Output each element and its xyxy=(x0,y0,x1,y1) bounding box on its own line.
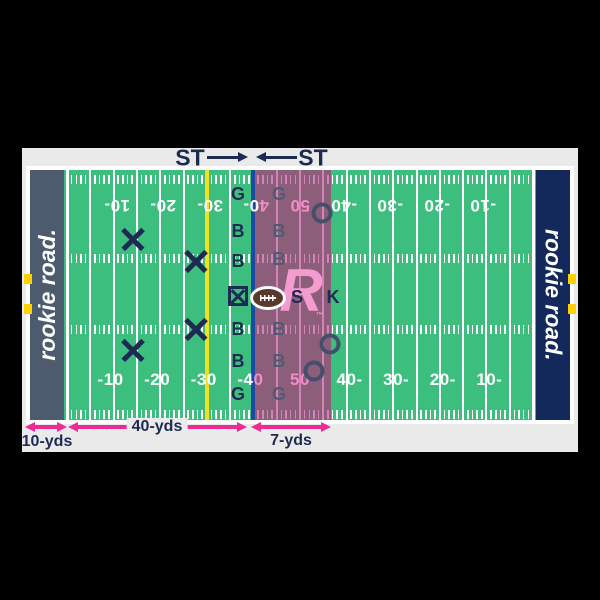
goal-line xyxy=(532,170,535,420)
hash-mark xyxy=(145,325,147,334)
sideline-marker-icon xyxy=(24,274,32,284)
hash-mark xyxy=(332,175,334,184)
hash-mark xyxy=(248,254,250,263)
hash-mark xyxy=(71,325,73,334)
hash-mark xyxy=(374,175,376,184)
hash-mark xyxy=(528,254,530,263)
hash-mark xyxy=(476,325,478,334)
hash-mark xyxy=(448,325,450,334)
hash-mark xyxy=(197,175,199,184)
hash-mark xyxy=(332,325,334,334)
hash-mark xyxy=(350,325,352,334)
hash-mark xyxy=(336,254,338,263)
player-o-mark xyxy=(312,203,333,224)
hash-mark xyxy=(448,410,450,419)
player-o-mark xyxy=(320,334,341,355)
hash-mark xyxy=(117,325,119,334)
hash-mark xyxy=(85,325,87,334)
yard-number: -20 xyxy=(424,195,450,215)
yard-number: 40- xyxy=(243,195,269,215)
hash-mark xyxy=(85,175,87,184)
yard-number-part: 0 xyxy=(253,370,263,389)
hash-mark xyxy=(187,410,189,419)
hash-mark xyxy=(378,325,380,334)
hash-mark xyxy=(108,325,110,334)
hash-mark xyxy=(383,254,385,263)
endzone-right-label: rookie road. xyxy=(540,229,567,361)
hash-mark xyxy=(99,254,101,263)
hash-mark xyxy=(364,325,366,334)
yard-number-part: -20 xyxy=(144,370,170,389)
hash-mark xyxy=(131,325,133,334)
hash-mark xyxy=(481,175,483,184)
hash-mark xyxy=(388,325,390,334)
hash-mark xyxy=(103,175,105,184)
hash-mark xyxy=(173,175,175,184)
hash-mark xyxy=(434,175,436,184)
yard-number-part: 20- xyxy=(430,370,456,389)
hash-mark xyxy=(476,410,478,419)
hash-mark xyxy=(378,175,380,184)
hash-mark xyxy=(169,175,171,184)
hash-mark xyxy=(430,325,432,334)
hash-mark xyxy=(490,175,492,184)
hash-mark xyxy=(108,175,110,184)
hash-mark xyxy=(262,254,264,263)
hash-mark xyxy=(141,175,143,184)
sideline-marker-icon xyxy=(24,304,32,314)
hash-mark xyxy=(500,410,502,419)
hash-mark xyxy=(444,410,446,419)
hash-mark xyxy=(267,410,269,419)
hash-mark xyxy=(523,175,525,184)
hash-mark xyxy=(364,410,366,419)
hash-mark xyxy=(257,254,259,263)
hash-mark xyxy=(76,254,78,263)
hash-mark xyxy=(248,175,250,184)
hash-mark xyxy=(243,410,245,419)
hash-mark xyxy=(523,254,525,263)
hash-mark xyxy=(309,325,311,334)
player-x-mark xyxy=(183,316,209,342)
player-x-mark xyxy=(120,337,146,363)
hash-mark xyxy=(444,254,446,263)
hash-mark xyxy=(383,325,385,334)
hash-mark xyxy=(122,325,124,334)
hash-mark xyxy=(355,325,357,334)
line-player-letter: B xyxy=(232,222,245,240)
arrow-left-shaft xyxy=(266,156,297,159)
hash-mark xyxy=(495,175,497,184)
hash-mark xyxy=(257,410,259,419)
hash-mark xyxy=(211,410,213,419)
hash-mark xyxy=(402,410,404,419)
hash-mark xyxy=(406,325,408,334)
football-diagram: rookie road. rookie road. -10-20-30-4050… xyxy=(0,0,600,600)
hash-mark xyxy=(76,410,78,419)
yard-number-part: 50 xyxy=(290,196,310,215)
line-player-letter: G xyxy=(231,185,245,203)
arrow-right-icon xyxy=(238,152,248,162)
hash-mark xyxy=(164,254,166,263)
line-player-letter: G xyxy=(231,385,245,403)
hash-mark xyxy=(117,410,119,419)
endzone-left-label: rookie road. xyxy=(34,229,61,361)
hash-mark xyxy=(495,325,497,334)
hash-mark xyxy=(220,410,222,419)
hash-mark xyxy=(444,325,446,334)
hash-mark xyxy=(103,254,105,263)
hash-mark xyxy=(481,254,483,263)
hash-mark xyxy=(295,325,297,334)
hash-mark xyxy=(374,410,376,419)
hash-mark xyxy=(448,175,450,184)
hash-mark xyxy=(444,175,446,184)
hash-mark xyxy=(211,175,213,184)
yard-number-part: -30 xyxy=(191,370,217,389)
hash-mark xyxy=(434,325,436,334)
football-icon xyxy=(250,286,286,310)
hash-mark xyxy=(383,175,385,184)
hash-mark xyxy=(332,254,334,263)
line-player-letter: B xyxy=(232,352,245,370)
hash-mark xyxy=(71,175,73,184)
hash-mark xyxy=(504,325,506,334)
hash-mark xyxy=(103,410,105,419)
hash-mark xyxy=(336,325,338,334)
hash-mark xyxy=(304,325,306,334)
hash-mark xyxy=(281,175,283,184)
hash-mark xyxy=(215,410,217,419)
yard-number-part: 0- xyxy=(243,196,259,215)
hash-mark xyxy=(425,175,427,184)
hash-mark xyxy=(94,325,96,334)
hash-mark xyxy=(528,175,530,184)
hash-mark xyxy=(234,175,236,184)
hash-mark xyxy=(80,410,82,419)
measure-7yds-shaft xyxy=(259,425,323,429)
hash-mark xyxy=(318,410,320,419)
yard-number-part: 30- xyxy=(383,370,409,389)
hash-mark xyxy=(476,254,478,263)
hash-mark xyxy=(350,410,352,419)
hash-mark xyxy=(472,410,474,419)
hash-mark xyxy=(239,175,241,184)
hash-mark xyxy=(374,254,376,263)
hash-mark xyxy=(145,254,147,263)
hash-mark xyxy=(397,175,399,184)
hash-mark xyxy=(406,175,408,184)
hash-mark xyxy=(500,325,502,334)
hash-mark xyxy=(267,325,269,334)
hash-mark xyxy=(271,410,273,419)
hash-mark xyxy=(430,410,432,419)
hash-mark xyxy=(155,254,157,263)
yard-line xyxy=(416,170,418,420)
hash-mark xyxy=(145,175,147,184)
hash-mark xyxy=(257,175,259,184)
hash-mark xyxy=(187,175,189,184)
hash-mark xyxy=(388,410,390,419)
hash-mark xyxy=(472,325,474,334)
hash-mark xyxy=(295,410,297,419)
arrow-right-shaft xyxy=(207,156,238,159)
hash-mark xyxy=(402,254,404,263)
hash-mark xyxy=(290,175,292,184)
hash-mark xyxy=(378,410,380,419)
hash-mark xyxy=(117,254,119,263)
hash-mark xyxy=(127,325,129,334)
hash-mark xyxy=(225,254,227,263)
hash-mark xyxy=(514,175,516,184)
hash-mark xyxy=(215,254,217,263)
hash-mark xyxy=(262,325,264,334)
hash-mark xyxy=(458,410,460,419)
hash-mark xyxy=(313,325,315,334)
hash-mark xyxy=(341,175,343,184)
hash-mark xyxy=(122,410,124,419)
hash-mark xyxy=(518,410,520,419)
hash-mark xyxy=(262,410,264,419)
hash-mark xyxy=(336,410,338,419)
hash-mark xyxy=(281,410,283,419)
hash-mark xyxy=(514,254,516,263)
measure-arrowhead xyxy=(57,422,67,432)
hash-mark xyxy=(453,175,455,184)
endzone-right: rookie road. xyxy=(536,170,570,420)
hash-mark xyxy=(518,175,520,184)
hash-mark xyxy=(467,325,469,334)
hash-mark xyxy=(350,175,352,184)
hash-mark xyxy=(164,175,166,184)
hash-mark xyxy=(434,410,436,419)
hash-mark xyxy=(374,325,376,334)
hash-mark xyxy=(318,175,320,184)
hash-mark xyxy=(467,410,469,419)
hash-mark xyxy=(127,254,129,263)
hash-mark xyxy=(220,325,222,334)
hash-mark xyxy=(518,325,520,334)
hash-mark xyxy=(420,254,422,263)
hash-mark xyxy=(150,254,152,263)
yard-number-part: 30- xyxy=(197,196,223,215)
player-o-mark xyxy=(304,361,325,382)
hash-mark xyxy=(467,175,469,184)
hash-mark xyxy=(341,410,343,419)
hash-mark xyxy=(476,175,478,184)
hash-mark xyxy=(290,325,292,334)
measure-10yds-shaft xyxy=(33,425,59,429)
hash-mark xyxy=(192,175,194,184)
hash-mark xyxy=(313,175,315,184)
hash-mark xyxy=(103,325,105,334)
hash-mark xyxy=(472,175,474,184)
hash-mark xyxy=(355,254,357,263)
hash-mark xyxy=(178,325,180,334)
yard-number: -40 xyxy=(331,195,357,215)
hash-mark xyxy=(141,325,143,334)
yard-line xyxy=(369,170,371,420)
hash-mark xyxy=(99,175,101,184)
special-teams-left-label: ST xyxy=(175,145,204,172)
hash-mark xyxy=(495,410,497,419)
hash-mark xyxy=(248,325,250,334)
hash-mark xyxy=(327,410,329,419)
line-player-letter: G xyxy=(272,185,286,203)
yard-number: 10- xyxy=(476,370,502,390)
hash-mark xyxy=(122,254,124,263)
yard-number: -10 xyxy=(470,195,496,215)
hash-mark xyxy=(490,325,492,334)
hash-mark xyxy=(150,175,152,184)
hash-mark xyxy=(178,175,180,184)
yard-number: 30- xyxy=(383,370,409,390)
hash-mark xyxy=(402,175,404,184)
hash-mark xyxy=(332,410,334,419)
hash-mark xyxy=(504,410,506,419)
hash-mark xyxy=(211,254,213,263)
hash-mark xyxy=(117,175,119,184)
yard-number: -10 xyxy=(98,370,124,390)
hash-mark xyxy=(327,254,329,263)
hash-mark xyxy=(355,175,357,184)
hash-mark xyxy=(131,175,133,184)
hash-mark xyxy=(122,175,124,184)
yard-number: 50 xyxy=(290,195,310,215)
hash-mark xyxy=(453,410,455,419)
line-player-letter: B xyxy=(273,222,286,240)
hash-mark xyxy=(504,175,506,184)
hash-mark xyxy=(420,325,422,334)
hash-mark xyxy=(257,325,259,334)
hash-mark xyxy=(430,175,432,184)
hash-mark xyxy=(411,175,413,184)
hash-mark xyxy=(80,325,82,334)
yard-number: -30 xyxy=(191,370,217,390)
football-lace-bar xyxy=(260,297,276,299)
hash-mark xyxy=(528,325,530,334)
special-teams-right-label: ST xyxy=(298,145,327,172)
hash-mark xyxy=(304,175,306,184)
hash-mark xyxy=(94,410,96,419)
hash-mark xyxy=(318,325,320,334)
hash-mark xyxy=(211,325,213,334)
hash-mark xyxy=(309,175,311,184)
yard-number: -20 xyxy=(144,370,170,390)
hash-mark xyxy=(94,254,96,263)
hash-mark xyxy=(313,410,315,419)
hash-mark xyxy=(336,175,338,184)
yard-number-part: -30 xyxy=(377,196,403,215)
yard-number: 30- xyxy=(197,195,223,215)
hash-mark xyxy=(164,325,166,334)
hash-mark xyxy=(514,410,516,419)
hash-mark xyxy=(71,410,73,419)
line-player-letter: B xyxy=(232,252,245,270)
line-player-letter: B xyxy=(232,320,245,338)
hash-mark xyxy=(197,410,199,419)
hash-mark xyxy=(225,175,227,184)
hash-mark xyxy=(304,410,306,419)
hash-mark xyxy=(173,325,175,334)
hash-mark xyxy=(290,410,292,419)
hash-mark xyxy=(341,254,343,263)
hash-mark xyxy=(350,254,352,263)
hash-mark xyxy=(481,410,483,419)
hash-mark xyxy=(425,410,427,419)
hash-mark xyxy=(80,175,82,184)
hash-mark xyxy=(360,325,362,334)
hash-mark xyxy=(285,410,287,419)
hash-mark xyxy=(360,175,362,184)
hash-mark xyxy=(225,325,227,334)
hash-mark xyxy=(364,175,366,184)
hash-mark xyxy=(425,254,427,263)
yard-line xyxy=(509,170,511,420)
hash-mark xyxy=(155,325,157,334)
hash-mark xyxy=(458,175,460,184)
hash-mark xyxy=(327,175,329,184)
hash-mark xyxy=(523,325,525,334)
yard-line xyxy=(136,170,138,420)
hash-mark xyxy=(458,254,460,263)
sideline-marker-icon xyxy=(568,304,576,314)
hash-mark xyxy=(397,325,399,334)
hash-mark xyxy=(108,410,110,419)
hash-mark xyxy=(523,410,525,419)
hash-mark xyxy=(141,254,143,263)
hash-mark xyxy=(528,410,530,419)
hash-mark xyxy=(397,410,399,419)
hash-mark xyxy=(150,325,152,334)
yard-number: 20- xyxy=(430,370,456,390)
hash-mark xyxy=(243,175,245,184)
measure-7yds-label: 7-yds xyxy=(270,432,312,450)
hash-mark xyxy=(434,254,436,263)
hash-mark xyxy=(220,254,222,263)
hash-mark xyxy=(76,175,78,184)
hash-mark xyxy=(453,254,455,263)
yard-number-part: 10- xyxy=(104,196,130,215)
hash-mark xyxy=(402,325,404,334)
hash-mark xyxy=(215,175,217,184)
yard-number-part: -20 xyxy=(424,196,450,215)
yard-number: 40- xyxy=(337,370,363,390)
yard-number-part: 20- xyxy=(150,196,176,215)
yard-number-part: -10 xyxy=(470,196,496,215)
hash-mark xyxy=(131,254,133,263)
hash-mark xyxy=(234,410,236,419)
hash-mark xyxy=(388,175,390,184)
yard-number-part: -10 xyxy=(98,370,124,389)
hash-mark xyxy=(495,254,497,263)
arrow-left-icon xyxy=(256,152,266,162)
trademark-mark: ™ xyxy=(316,312,323,319)
sideline-marker-icon xyxy=(568,274,576,284)
measure-arrowhead xyxy=(321,422,331,432)
hash-mark xyxy=(430,254,432,263)
yard-number-part: -40 xyxy=(331,196,357,215)
measure-40yds-label: 40-yds xyxy=(127,418,188,436)
hash-mark xyxy=(239,410,241,419)
hash-mark xyxy=(360,410,362,419)
hash-mark xyxy=(76,325,78,334)
hash-mark xyxy=(420,175,422,184)
hash-mark xyxy=(99,410,101,419)
hash-mark xyxy=(85,410,87,419)
player-x-mark xyxy=(183,248,209,274)
line-player-letter: G xyxy=(272,385,286,403)
